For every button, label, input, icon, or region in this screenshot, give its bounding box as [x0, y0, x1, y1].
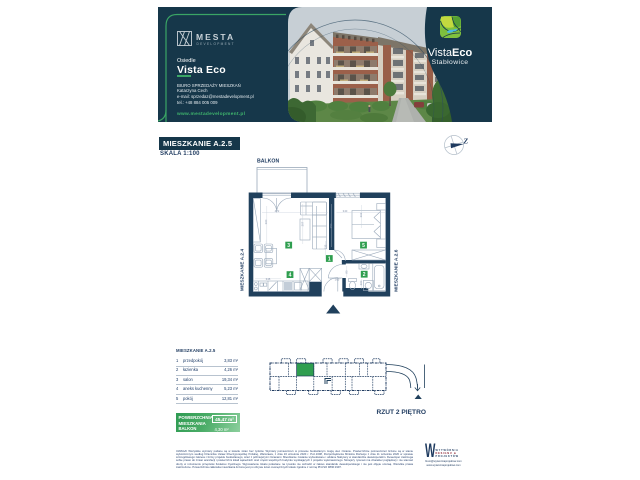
- svg-text:165: 165: [335, 278, 340, 282]
- svg-text:3: 3: [287, 243, 290, 249]
- svg-text:80: 80: [345, 270, 349, 274]
- svg-text:2: 2: [363, 272, 366, 278]
- svg-text:340: 340: [343, 209, 348, 213]
- svg-text:472: 472: [275, 209, 280, 213]
- svg-text:5: 5: [362, 243, 365, 249]
- svg-text:362: 362: [359, 212, 363, 217]
- svg-text:307: 307: [301, 221, 305, 226]
- svg-text:1: 1: [328, 256, 331, 262]
- svg-text:MIESZKANIE A.2.4: MIESZKANIE A.2.4: [240, 249, 246, 292]
- svg-text:4: 4: [289, 272, 292, 278]
- svg-text:360: 360: [264, 219, 268, 224]
- svg-text:348: 348: [266, 277, 271, 281]
- svg-text:135: 135: [324, 244, 328, 249]
- svg-text:BALKON: BALKON: [257, 159, 279, 165]
- svg-text:Z: Z: [463, 137, 469, 146]
- svg-text:MIESZKANIE A.2.6: MIESZKANIE A.2.6: [394, 249, 400, 292]
- svg-text:360: 360: [359, 280, 363, 285]
- svg-text:350: 350: [329, 223, 333, 228]
